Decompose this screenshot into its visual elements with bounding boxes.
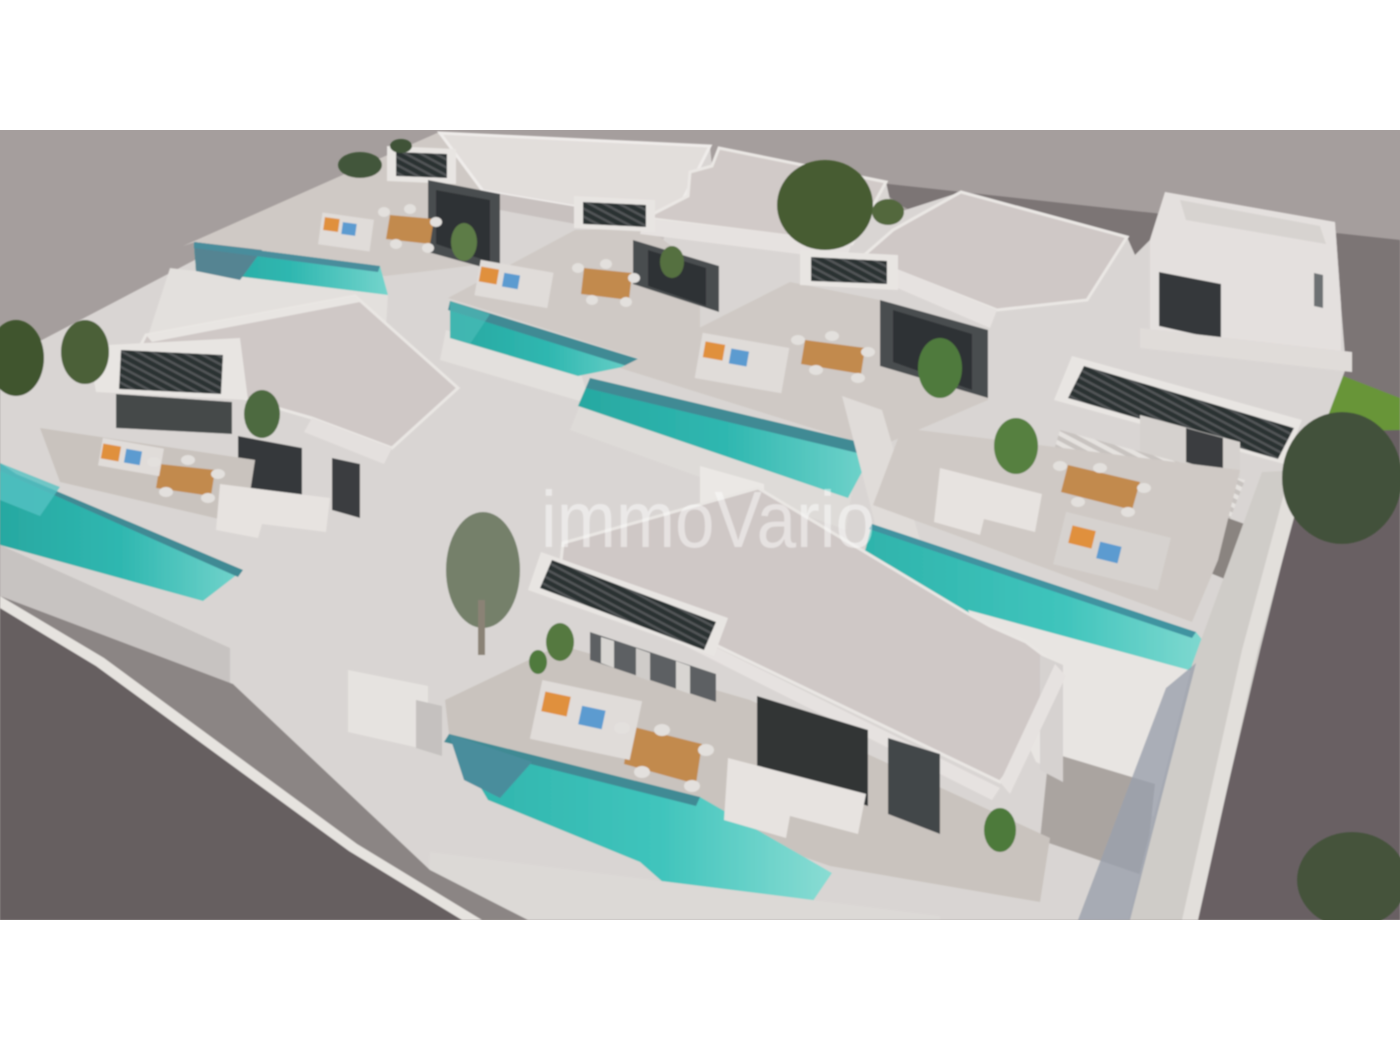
svg-text:immoVario: immoVario	[541, 475, 875, 564]
